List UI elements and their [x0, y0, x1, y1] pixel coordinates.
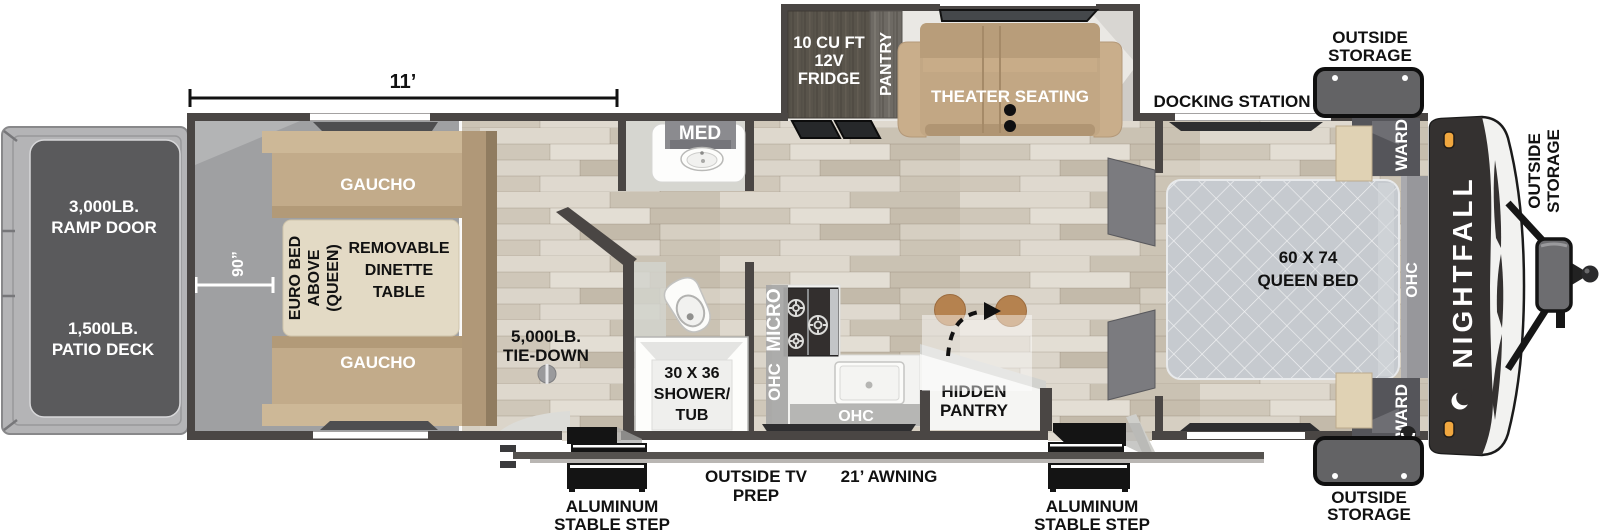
svg-text:MED: MED — [679, 123, 721, 144]
svg-text:MICRO: MICRO — [764, 288, 785, 351]
svg-text:STORAGE: STORAGE — [1328, 46, 1412, 65]
svg-text:TABLE: TABLE — [373, 284, 425, 301]
svg-text:EURO BED: EURO BED — [287, 236, 304, 320]
svg-text:90”: 90” — [230, 251, 247, 277]
svg-text:STORAGE: STORAGE — [1327, 505, 1411, 524]
svg-text:11’: 11’ — [390, 71, 417, 93]
svg-text:TIE-DOWN: TIE-DOWN — [503, 346, 589, 365]
svg-text:REMOVABLE: REMOVABLE — [348, 240, 449, 257]
svg-text:QUEEN BED: QUEEN BED — [1257, 271, 1358, 290]
svg-text:DINETTE: DINETTE — [365, 262, 434, 279]
svg-text:NIGHTFALL: NIGHTFALL — [1447, 175, 1478, 368]
svg-text:WARD: WARD — [1392, 119, 1411, 171]
svg-text:5,000LB.: 5,000LB. — [511, 327, 581, 346]
svg-text:PREP: PREP — [733, 486, 779, 505]
svg-text:10 CU FT: 10 CU FT — [793, 34, 865, 52]
svg-text:SHOWER/: SHOWER/ — [654, 386, 731, 403]
svg-text:TUB: TUB — [676, 407, 709, 424]
svg-text:OHC: OHC — [838, 408, 874, 425]
svg-text:3,000LB.: 3,000LB. — [69, 197, 139, 216]
svg-text:RAMP DOOR: RAMP DOOR — [51, 218, 156, 237]
svg-text:1,500LB.: 1,500LB. — [68, 319, 138, 338]
svg-text:OHC: OHC — [765, 363, 784, 401]
svg-text:PANTRY: PANTRY — [878, 32, 895, 96]
svg-text:ALUMINUM: ALUMINUM — [1046, 497, 1139, 516]
svg-text:OUTSIDE: OUTSIDE — [1332, 28, 1408, 47]
svg-text:STORAGE: STORAGE — [1544, 129, 1563, 213]
svg-text:ABOVE: ABOVE — [306, 249, 323, 306]
svg-text:STABLE STEP: STABLE STEP — [1034, 515, 1150, 531]
svg-text:PANTRY: PANTRY — [940, 401, 1009, 420]
svg-text:12V: 12V — [814, 52, 843, 70]
svg-text:GAUCHO: GAUCHO — [340, 175, 416, 194]
svg-text:OUTSIDE: OUTSIDE — [1525, 133, 1544, 209]
svg-text:FRIDGE: FRIDGE — [798, 70, 860, 88]
svg-text:OHC: OHC — [1404, 262, 1421, 298]
svg-text:(QUEEN): (QUEEN) — [325, 244, 342, 312]
svg-text:OUTSIDE TV: OUTSIDE TV — [705, 467, 808, 486]
svg-text:THEATER SEATING: THEATER SEATING — [931, 87, 1089, 106]
svg-text:STABLE STEP: STABLE STEP — [554, 515, 670, 531]
svg-text:60 X 74: 60 X 74 — [1279, 248, 1338, 267]
svg-text:DOCKING STATION: DOCKING STATION — [1153, 92, 1310, 111]
svg-text:ALUMINUM: ALUMINUM — [566, 497, 659, 516]
svg-text:GAUCHO: GAUCHO — [340, 353, 416, 372]
svg-text:PATIO DECK: PATIO DECK — [52, 340, 155, 359]
svg-text:21’ AWNING: 21’ AWNING — [841, 467, 938, 486]
svg-text:30 X 36: 30 X 36 — [664, 365, 719, 382]
